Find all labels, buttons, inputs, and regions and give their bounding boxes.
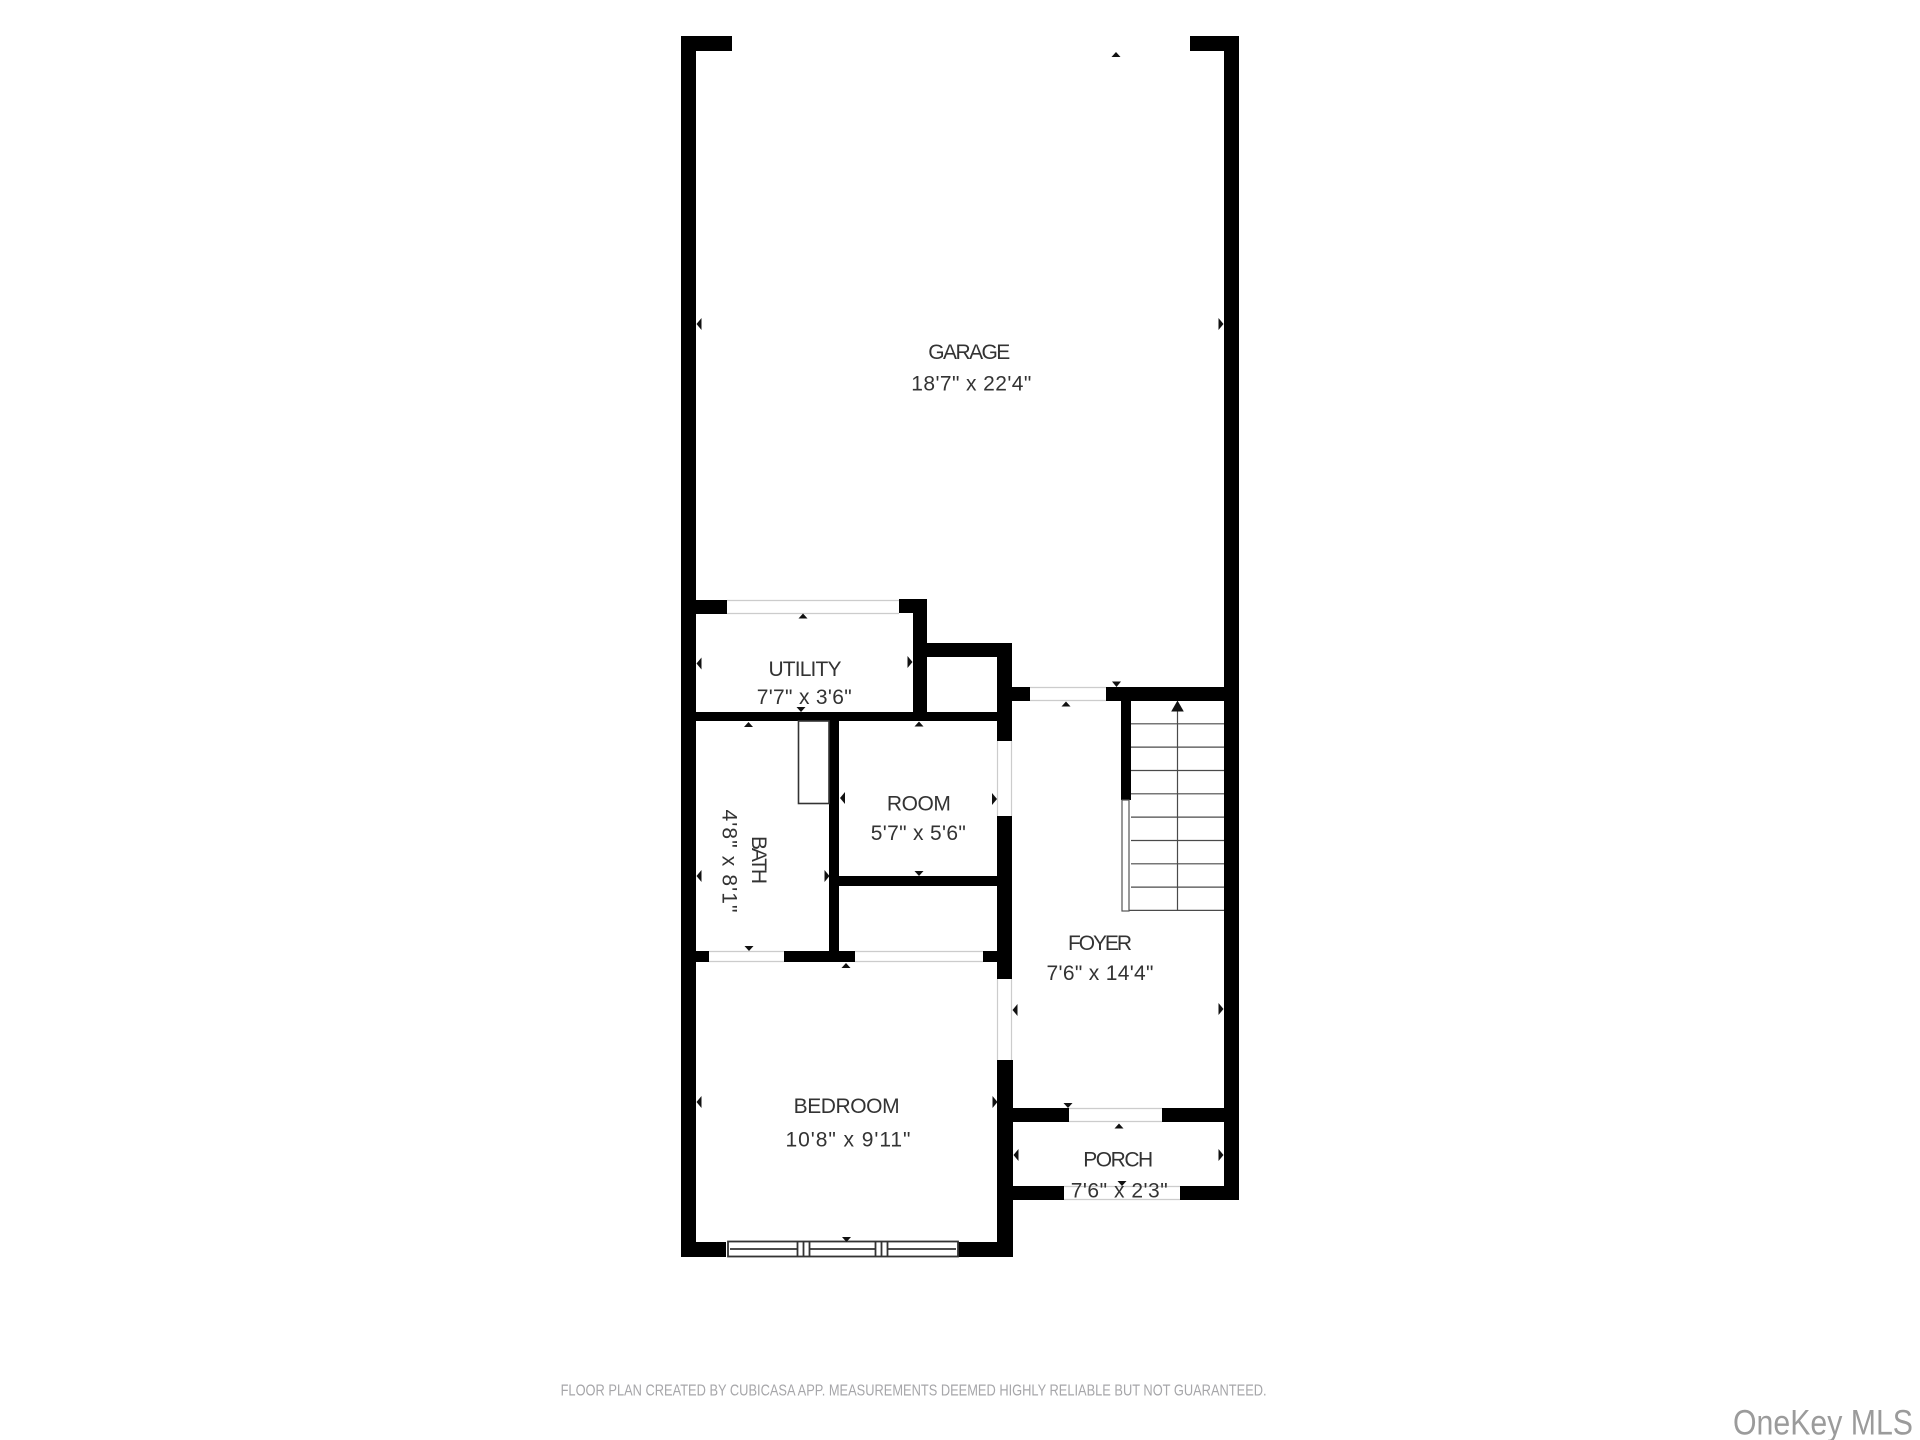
svg-text:18'7" x 22'4": 18'7" x 22'4" <box>911 373 1031 396</box>
svg-text:4'8" x 8'1": 4'8" x 8'1" <box>718 810 741 913</box>
svg-text:7'6" x 14'4": 7'6" x 14'4" <box>1047 962 1154 985</box>
svg-text:UTILITY: UTILITY <box>769 658 842 681</box>
svg-text:7'6" x 2'3": 7'6" x 2'3" <box>1071 1180 1168 1203</box>
svg-text:BEDROOM: BEDROOM <box>794 1095 900 1118</box>
svg-text:PORCH: PORCH <box>1083 1149 1153 1172</box>
svg-text:FLOOR PLAN CREATED BY CUBICASA: FLOOR PLAN CREATED BY CUBICASA APP. MEAS… <box>561 1383 1267 1400</box>
svg-text:BATH: BATH <box>747 836 770 884</box>
svg-text:5'7" x 5'6": 5'7" x 5'6" <box>871 822 966 845</box>
svg-text:GARAGE: GARAGE <box>928 341 1010 364</box>
svg-text:OneKey MLS: OneKey MLS <box>1733 1404 1913 1440</box>
svg-text:ROOM: ROOM <box>887 793 951 816</box>
svg-text:10'8" x 9'11": 10'8" x 9'11" <box>786 1129 911 1152</box>
svg-text:FOYER: FOYER <box>1068 932 1132 955</box>
svg-text:7'7" x 3'6": 7'7" x 3'6" <box>757 686 852 709</box>
